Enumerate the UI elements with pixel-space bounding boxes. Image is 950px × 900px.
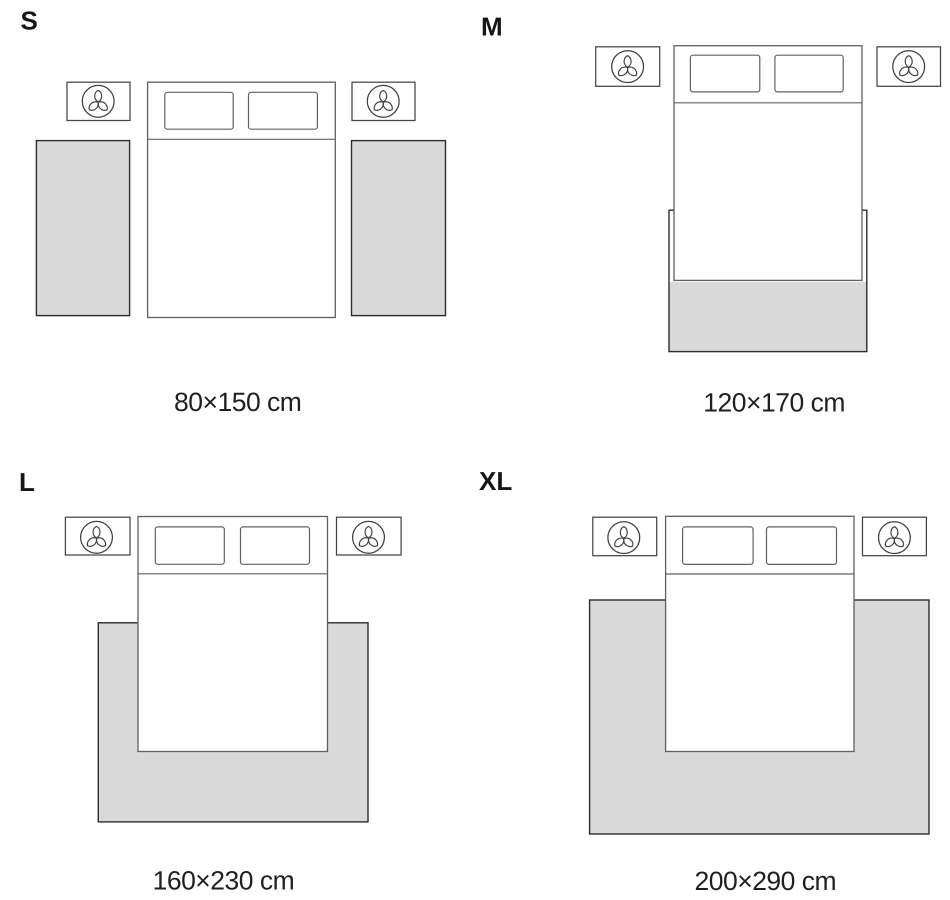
svg-text:M: M xyxy=(481,11,503,41)
svg-text:160×230 cm: 160×230 cm xyxy=(153,865,295,895)
svg-text:80×150 cm: 80×150 cm xyxy=(174,387,301,417)
svg-text:XL: XL xyxy=(479,466,512,496)
svg-text:L: L xyxy=(19,467,35,497)
svg-text:200×290 cm: 200×290 cm xyxy=(695,866,837,896)
svg-text:120×170 cm: 120×170 cm xyxy=(703,387,845,417)
svg-text:S: S xyxy=(21,6,38,36)
